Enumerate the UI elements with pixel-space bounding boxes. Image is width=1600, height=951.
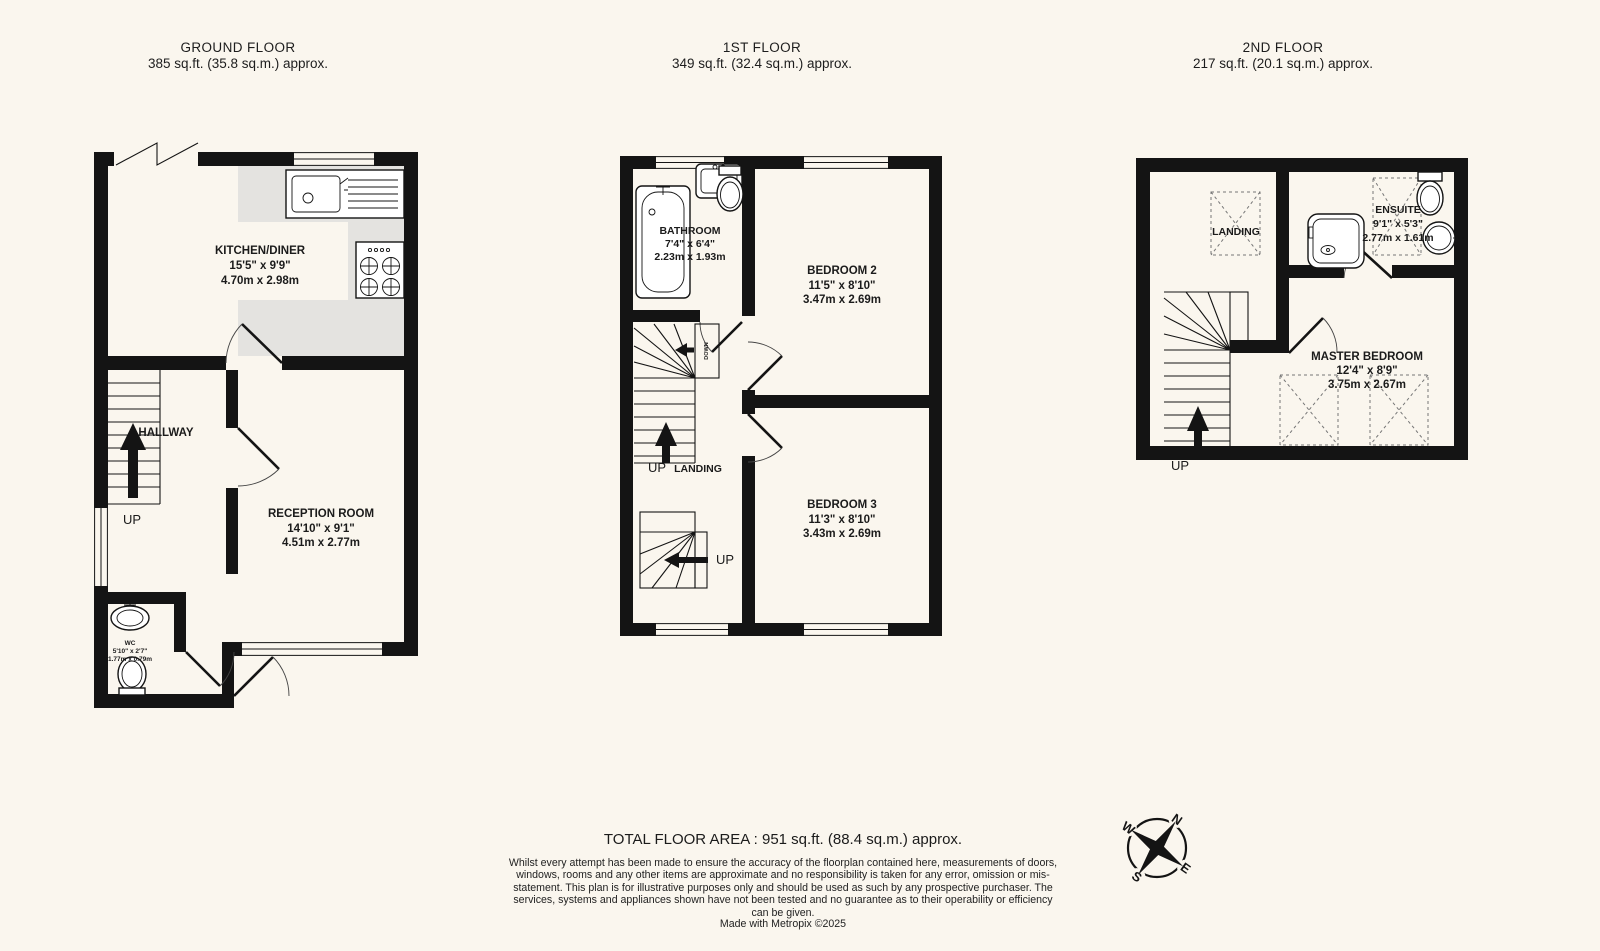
room-label-landing: LANDING <box>674 463 722 475</box>
first-floor-header: 1ST FLOOR 349 sq.ft. (32.4 sq.m.) approx… <box>602 40 922 71</box>
down-label: DOWN <box>704 342 710 359</box>
room-dims-kitchen-imperial: 15'5" x 9'9" <box>229 260 290 272</box>
first-floor-area: 349 sq.ft. (32.4 sq.m.) approx. <box>602 56 922 71</box>
room-dims-master-imperial: 12'4" x 8'9" <box>1336 365 1397 377</box>
room-dims-kitchen-metric: 4.70m x 2.98m <box>221 275 299 287</box>
room-dims-reception-imperial: 14'10" x 9'1" <box>287 523 355 535</box>
room-dims-bedroom2-imperial: 11'5" x 8'10" <box>809 280 876 292</box>
window <box>804 156 888 169</box>
total-floor-area: TOTAL FLOOR AREA : 951 sq.ft. (88.4 sq.m… <box>483 831 1083 848</box>
up-arrow-icon <box>1187 406 1209 446</box>
room-label-wc: WC <box>125 640 136 647</box>
compass-rose-icon: N E S W <box>1112 802 1202 892</box>
disclaimer-text: Whilst every attempt has been made to en… <box>508 857 1058 919</box>
staircase-down: DOWN <box>634 324 719 463</box>
room-dims-bedroom3-imperial: 11'3" x 8'10" <box>809 514 876 526</box>
entrance-door-icon <box>116 143 198 165</box>
hob-icon <box>356 242 404 298</box>
room-label-bedroom2: BEDROOM 2 <box>807 265 877 277</box>
room-label-reception: RECEPTION ROOM <box>268 508 374 520</box>
room-dims-bedroom3-metric: 3.43m x 2.69m <box>803 528 881 540</box>
room-dims-bathroom-imperial: 7'4" x 6'4" <box>665 238 715 250</box>
room-label-landing: LANDING <box>1212 226 1260 238</box>
window <box>294 152 374 166</box>
first-floor-title: 1ST FLOOR <box>602 40 922 55</box>
room-label-kitchen: KITCHEN/DINER <box>215 245 306 257</box>
second-floor-plan: LANDING ENSUITE 9'1" x 5'3" 2.77m x 1.61… <box>1128 150 1476 482</box>
compass-star-icon <box>1112 803 1202 894</box>
wc-sink-icon <box>111 603 149 630</box>
room-dims-reception-metric: 4.51m x 2.77m <box>282 537 360 549</box>
window <box>656 623 728 636</box>
room-label-hallway: HALLWAY <box>138 427 193 439</box>
shower-icon <box>1308 214 1364 268</box>
bathroom-toilet-icon <box>717 166 743 211</box>
up-label: UP <box>1171 458 1189 473</box>
room-label-master-bedroom: MASTER BEDROOM <box>1311 351 1423 363</box>
up-label: UP <box>716 552 734 567</box>
room-dims-wc-imperial: 5'10" x 2'7" <box>113 648 148 655</box>
kitchen-sink-icon <box>286 170 404 218</box>
second-floor-area: 217 sq.ft. (20.1 sq.m.) approx. <box>1123 56 1443 71</box>
window <box>242 642 382 656</box>
floorplan-canvas: GROUND FLOOR 385 sq.ft. (35.8 sq.m.) app… <box>0 0 1600 951</box>
ground-floor-header: GROUND FLOOR 385 sq.ft. (35.8 sq.m.) app… <box>78 40 398 71</box>
up-arrow-icon <box>655 422 677 463</box>
room-label-bathroom: BATHROOM <box>659 225 720 237</box>
room-dims-ensuite-imperial: 9'1" x 5'3" <box>1373 218 1423 230</box>
up-label: UP <box>648 460 666 475</box>
staircase <box>1164 292 1248 446</box>
bedroom2-door <box>748 342 782 390</box>
credit-text: Made with Metropix ©2025 <box>508 918 1058 930</box>
room-dims-wc-metric: 1.77m x 0.79m <box>108 656 152 663</box>
reception-door <box>238 428 279 486</box>
lobby-door <box>234 657 289 696</box>
ground-floor-plan: KITCHEN/DINER 15'5" x 9'9" 4.70m x 2.98m… <box>86 140 430 720</box>
velux-window <box>1211 192 1260 255</box>
ground-floor-area: 385 sq.ft. (35.8 sq.m.) approx. <box>78 56 398 71</box>
ensuite-toilet-icon <box>1417 172 1443 215</box>
first-floor-plan: DOWN BATHROOM 7'4" x 6'4" 2.23m x 1.93m <box>612 150 952 642</box>
window <box>804 623 888 636</box>
ground-floor-title: GROUND FLOOR <box>78 40 398 55</box>
window <box>94 508 108 586</box>
room-dims-ensuite-metric: 2.77m x 1.61m <box>1362 232 1433 244</box>
bedroom3-door <box>748 414 782 462</box>
staircase-up <box>640 512 708 588</box>
room-dims-bathroom-metric: 2.23m x 1.93m <box>654 251 725 263</box>
room-label-ensuite: ENSUITE <box>1375 204 1421 216</box>
second-floor-title: 2ND FLOOR <box>1123 40 1443 55</box>
up-arrow-icon <box>664 552 708 568</box>
compass-west: W <box>1119 818 1138 838</box>
room-dims-bedroom2-metric: 3.47m x 2.69m <box>803 294 881 306</box>
second-floor-header: 2ND FLOOR 217 sq.ft. (20.1 sq.m.) approx… <box>1123 40 1443 71</box>
room-label-bedroom3: BEDROOM 3 <box>807 499 877 511</box>
room-dims-master-metric: 3.75m x 2.67m <box>1328 379 1406 391</box>
up-label: UP <box>123 512 141 527</box>
master-bedroom-door <box>1289 318 1337 353</box>
